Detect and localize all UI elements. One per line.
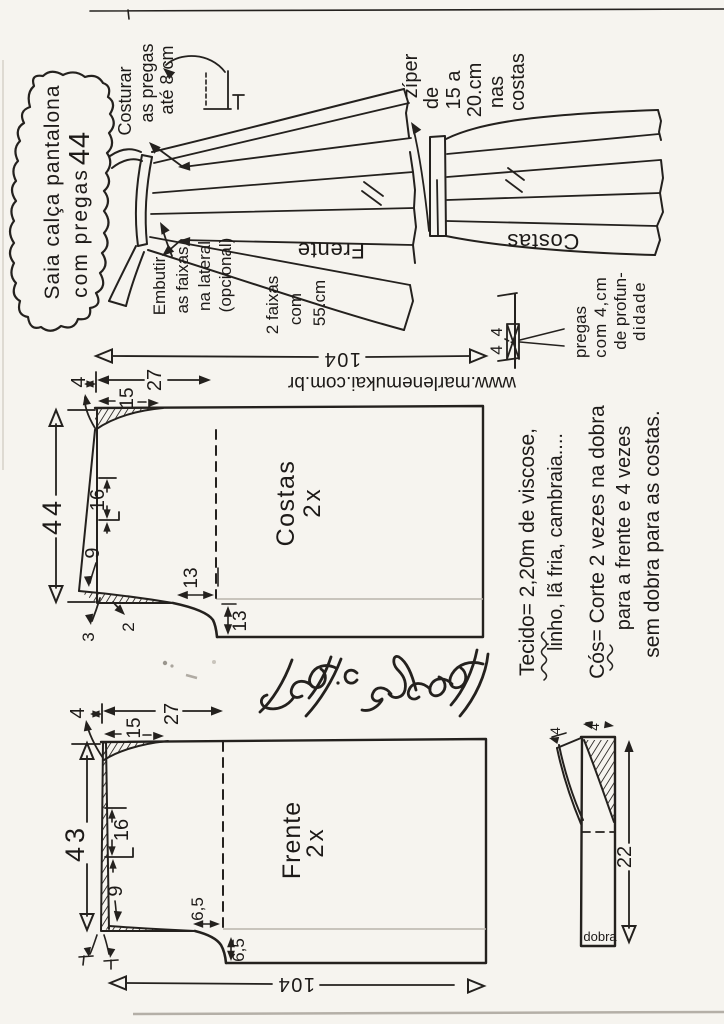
svg-text:16: 16 [111, 819, 133, 841]
svg-text:Cós= Corte 2 vezes na dobra: Cós= Corte 2 vezes na dobra [586, 405, 609, 679]
svg-text:Frente: Frente [297, 238, 365, 263]
svg-text:Saia calça pantalona: Saia calça pantalona [41, 85, 64, 300]
svg-text:Costurar: Costurar [115, 66, 135, 135]
svg-text:de profun-: de profun- [611, 272, 630, 350]
svg-text:4: 4 [547, 727, 563, 735]
svg-text:4: 4 [487, 345, 506, 354]
svg-text:27: 27 [161, 703, 183, 725]
svg-text:Costas: Costas [507, 229, 580, 254]
svg-text:pregas: pregas [571, 306, 590, 358]
svg-text:2: 2 [119, 622, 138, 631]
svg-text:linho, lã fria, cambraia....: linho, lã fria, cambraia.... [545, 433, 567, 651]
svg-text:nas: nas [486, 76, 508, 108]
svg-text:sem dobra para as costas.: sem dobra para as costas. [641, 410, 664, 657]
svg-text:didade: didade [630, 281, 649, 341]
svg-text:www.marlenemukai.com.br: www.marlenemukai.com.br [287, 372, 517, 393]
svg-text:4: 4 [67, 707, 89, 718]
svg-text:15: 15 [117, 387, 138, 408]
svg-text:104: 104 [323, 348, 361, 370]
svg-text:Embutir: Embutir [150, 256, 169, 315]
svg-text:4: 4 [489, 327, 506, 336]
svg-text:44: 44 [64, 131, 96, 165]
svg-text:até 8 cm: até 8 cm [157, 45, 177, 114]
svg-text:costas: costas [507, 53, 529, 111]
svg-text:de: de [421, 87, 443, 109]
svg-text:Costas: Costas [272, 460, 300, 547]
svg-text:com 4,cm: com 4,cm [591, 276, 610, 358]
svg-text:com: com [286, 293, 305, 325]
svg-text:na lateral: na lateral [195, 241, 214, 311]
svg-text:3: 3 [79, 632, 98, 641]
svg-text:9: 9 [105, 885, 127, 896]
svg-text:104: 104 [277, 973, 315, 995]
svg-text:4: 4 [586, 723, 602, 731]
svg-text:as pregas: as pregas [137, 43, 157, 122]
svg-text:15 a: 15 a [443, 70, 465, 110]
svg-text:6,5: 6,5 [188, 897, 207, 921]
svg-text:13: 13 [181, 567, 202, 588]
svg-text:para a frente e 4 vezes: para a frente e 4 vezes [613, 426, 635, 631]
svg-text:com pregas: com pregas [69, 168, 92, 298]
svg-text:as faixas: as faixas [173, 246, 192, 313]
svg-text:13: 13 [230, 610, 251, 631]
svg-text:20.cm: 20.cm [464, 63, 486, 117]
svg-text:22: 22 [614, 846, 636, 868]
svg-text:55.cm: 55.cm [310, 280, 329, 326]
svg-text:Tecido= 2,20m de viscose,: Tecido= 2,20m de viscose, [516, 428, 539, 676]
svg-text:44: 44 [37, 497, 67, 535]
svg-text:2 faixas: 2 faixas [263, 276, 282, 335]
svg-text:16: 16 [87, 489, 109, 511]
svg-text:27: 27 [144, 369, 166, 391]
svg-text:zíper: zíper [400, 53, 422, 98]
svg-text:2x: 2x [299, 486, 326, 517]
svg-text:6,5: 6,5 [229, 938, 248, 962]
svg-text:2x: 2x [302, 826, 329, 857]
svg-text:dobra: dobra [583, 929, 617, 944]
svg-text:9: 9 [82, 547, 104, 558]
svg-text:15: 15 [124, 717, 145, 738]
svg-text:(opcional): (opcional) [216, 238, 235, 313]
svg-text:43: 43 [60, 824, 90, 862]
